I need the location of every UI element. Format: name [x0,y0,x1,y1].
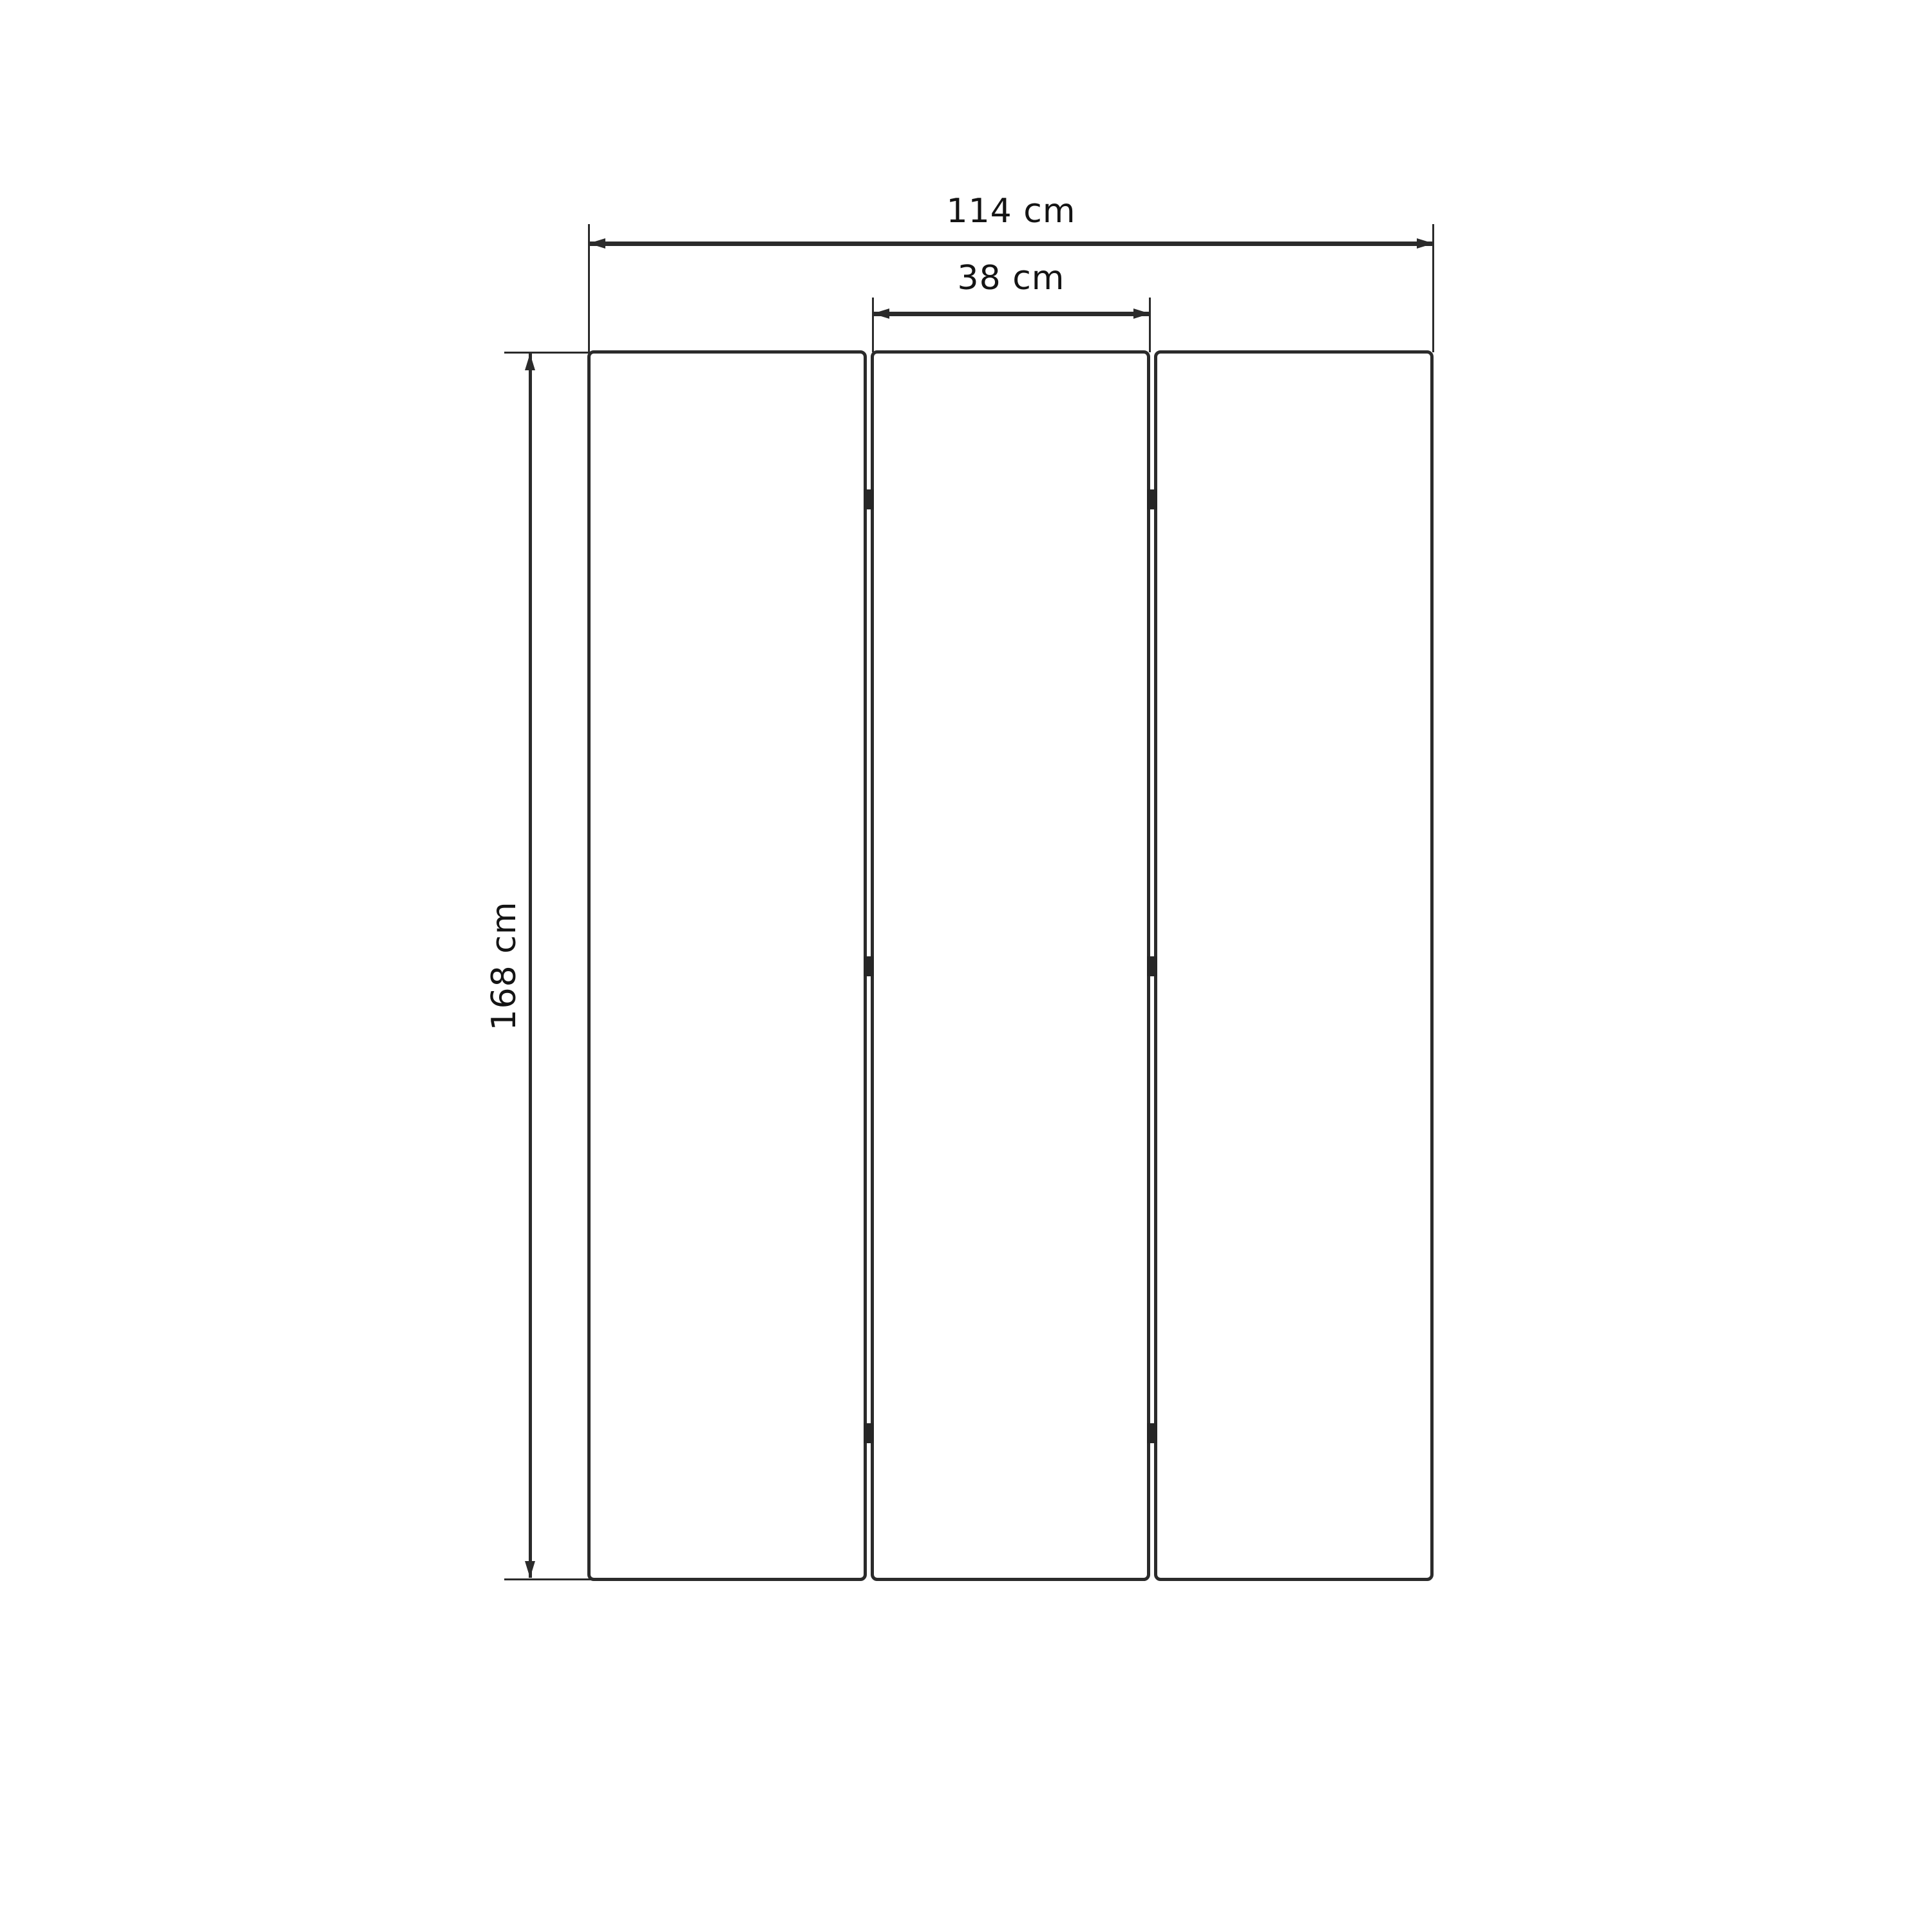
hinge-left-bottom [864,1423,874,1443]
height-dimension-label: 168 cm [486,837,522,1095]
screen-panel-right [1154,350,1434,1581]
screen-panel-left [587,350,867,1581]
panel-width-dimension-label: 38 cm [882,260,1140,296]
arrow-up-icon [525,354,535,370]
hinge-right-top [1147,489,1157,509]
diagram-canvas: 114 cm 38 cm 168 cm [0,0,1932,1932]
arrow-left-icon [873,308,889,319]
extension-line [1432,224,1434,352]
extension-line [504,352,589,354]
arrow-right-icon [1133,308,1150,319]
height-dimension-line [529,354,532,1578]
hinge-left-middle [864,956,874,976]
screen-panel-middle [871,350,1150,1581]
arrow-down-icon [525,1561,535,1578]
total-width-dimension-line [589,241,1434,246]
total-width-dimension-label: 114 cm [882,193,1140,229]
extension-line [1149,298,1151,352]
arrow-right-icon [1417,238,1434,249]
hinge-right-bottom [1147,1423,1157,1443]
arrow-left-icon [589,238,605,249]
panel-width-dimension-line [873,312,1150,316]
hinge-right-middle [1147,956,1157,976]
hinge-left-top [864,489,874,509]
extension-line [588,224,590,352]
extension-line [872,298,874,352]
extension-line [504,1578,592,1580]
